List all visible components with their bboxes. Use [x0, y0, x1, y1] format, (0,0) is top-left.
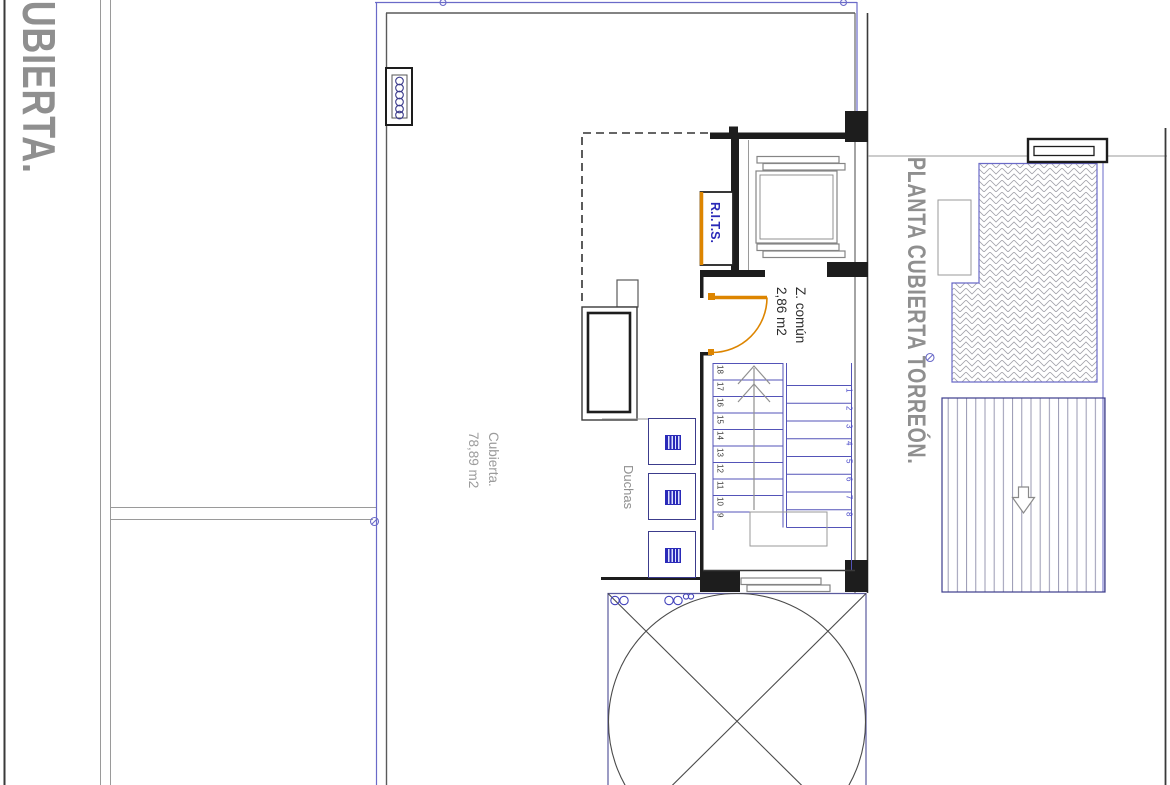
room-name: Cubierta. [483, 432, 503, 488]
sloped-roof-stripes [942, 398, 1105, 592]
room-label-common-zone: Z. común 2,86 m2 [770, 287, 810, 343]
tread-number: 11 [715, 481, 725, 489]
tread-number: 16 [715, 398, 725, 407]
tread-number: 9 [715, 513, 725, 517]
tread-number: 15 [715, 415, 725, 424]
dashed-projection-line [582, 133, 708, 302]
shower-icon [665, 435, 681, 450]
tread-number: 3 [844, 424, 854, 428]
skylight [582, 280, 638, 420]
tread-number: 6 [844, 477, 854, 481]
room-area: 78,89 m2 [463, 432, 483, 488]
floor-plan-sheet: CUBIERTA. PLANTA CUBIERTA TORREÓN. Cubie… [0, 0, 1170, 785]
shower-stall [648, 418, 696, 465]
shower-stall [648, 531, 696, 578]
shower-icon [665, 548, 681, 563]
tread-number: 5 [844, 459, 854, 463]
tread-number: 2 [844, 406, 854, 410]
elevator-symbol [756, 157, 845, 258]
tread-number: 8 [844, 512, 854, 516]
turret-roof [608, 594, 866, 785]
tread-number: 12 [715, 464, 725, 473]
tread-number: 18 [715, 365, 725, 374]
tread-number: 1 [844, 388, 854, 392]
chimney [1028, 139, 1107, 162]
tread-number: 7 [844, 495, 854, 499]
sheet-title: CUBIERTA. [12, 0, 66, 174]
sliding-door-symbol [741, 578, 830, 592]
shower-icon [665, 490, 681, 505]
tread-number: 10 [715, 497, 725, 506]
stair-up-arrow-icon [738, 366, 770, 510]
vent-icon [386, 68, 412, 125]
staircase [703, 363, 855, 571]
walls [601, 111, 868, 592]
tread-number: 17 [715, 382, 725, 391]
room-name: Z. común [791, 287, 810, 343]
floor-plan-linework [0, 0, 1170, 785]
drain-circles-icon [611, 594, 694, 605]
shower-stall [648, 473, 696, 520]
stair-landing [750, 512, 827, 546]
rits-label: R.I.T.S. [708, 202, 722, 243]
room-label-roof: Cubierta. 78,89 m2 [463, 432, 503, 488]
tread-number: 14 [715, 431, 725, 440]
room-label-showers: Duchas [621, 465, 636, 509]
plan-title: PLANTA CUBIERTA TORREÓN. [901, 157, 930, 465]
door-swing [708, 293, 767, 355]
tread-number: 13 [715, 448, 725, 457]
room-area: 2,86 m2 [772, 287, 791, 343]
tread-number: 4 [844, 441, 854, 445]
